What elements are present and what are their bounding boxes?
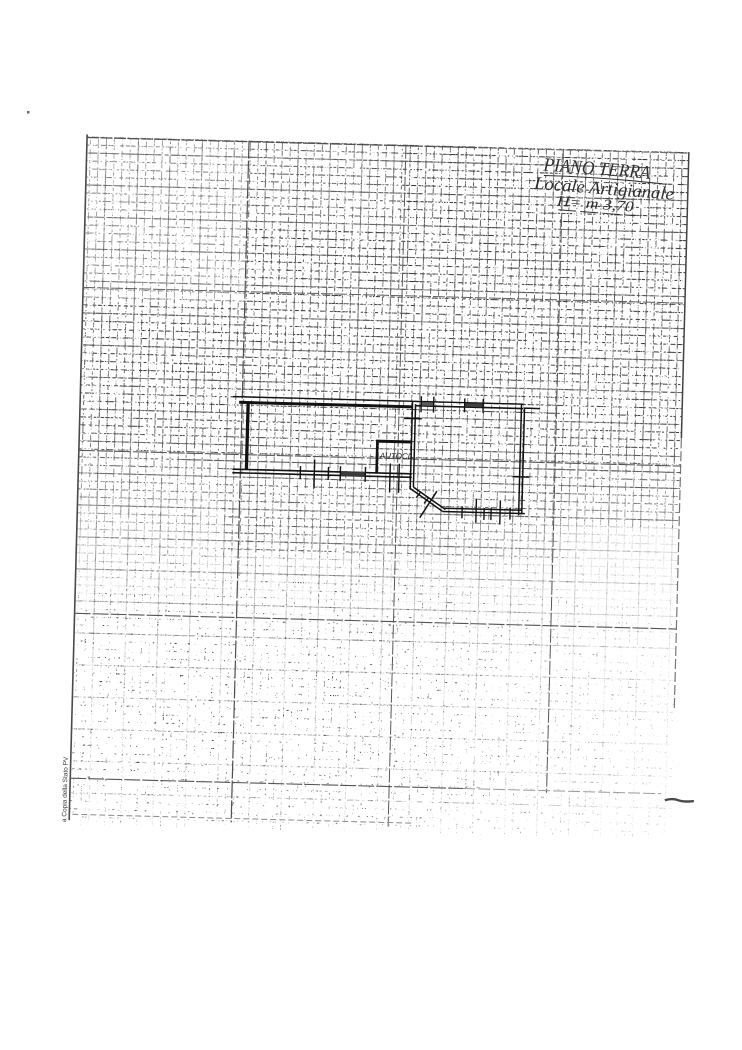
svg-text:AUTOCL.: AUTOCL. (379, 451, 415, 461)
